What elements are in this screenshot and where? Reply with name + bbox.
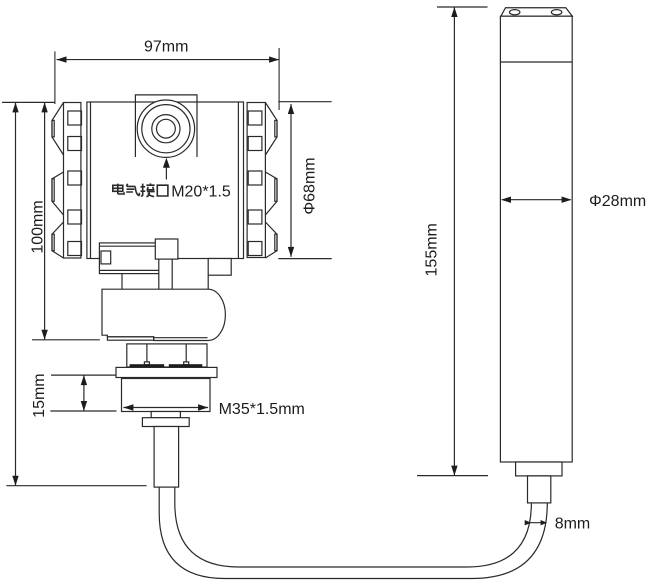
svg-text:Φ28mm: Φ28mm bbox=[589, 193, 646, 210]
svg-text:Φ68mm: Φ68mm bbox=[302, 157, 319, 214]
svg-text:8mm: 8mm bbox=[555, 516, 591, 533]
svg-text:100mm: 100mm bbox=[30, 200, 47, 253]
svg-text:M20*1.5: M20*1.5 bbox=[171, 183, 231, 200]
svg-text:155mm: 155mm bbox=[424, 223, 441, 276]
svg-text:15mm: 15mm bbox=[31, 373, 48, 417]
svg-text:97mm: 97mm bbox=[144, 38, 188, 55]
svg-text:M35*1.5mm: M35*1.5mm bbox=[219, 401, 305, 418]
